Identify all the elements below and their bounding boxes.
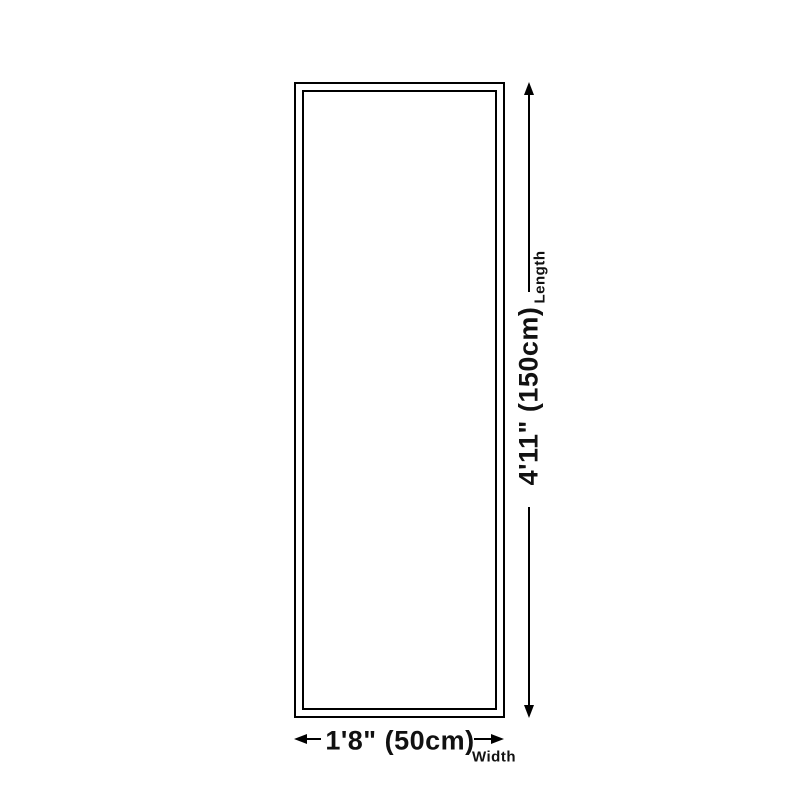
length-dimension-line-bottom [528,507,530,706]
arrow-right-icon [491,734,504,744]
length-dimension-line-top [528,94,530,292]
dimension-diagram: Length 4'11" (150cm) 1'8" (50cm) Width [0,0,800,800]
width-dimension-line-right [474,738,491,740]
length-dimension-value: 4'11" (150cm) [514,307,545,486]
width-dimension-value: 1'8" (50cm) [325,726,474,757]
arrow-down-icon [524,705,534,718]
product-outline-inner [302,90,497,710]
length-axis-label: Length [532,251,549,304]
width-dimension-line-left [306,738,321,740]
width-axis-label: Width [472,749,516,766]
